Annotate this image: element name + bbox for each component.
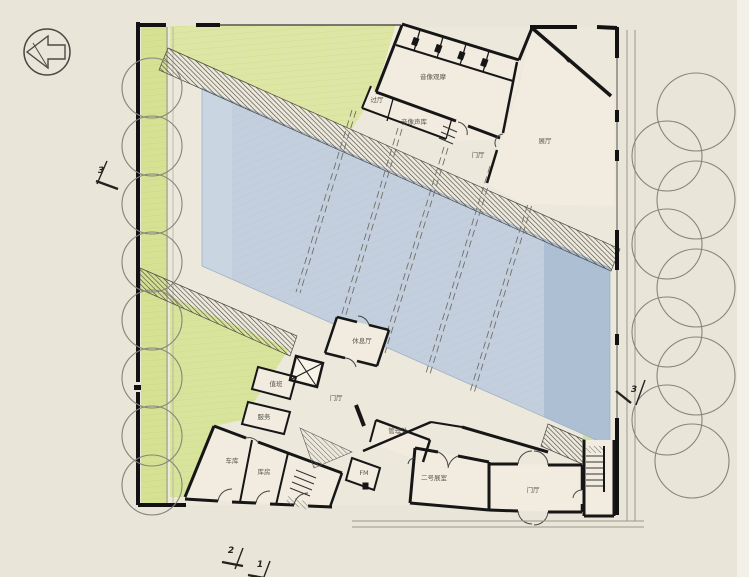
room-label-0: 音像观摩 bbox=[420, 74, 446, 81]
room-label-2: 音像声库 bbox=[401, 119, 427, 126]
room-label-13: 二号展室 bbox=[421, 475, 447, 482]
floor-plan-canvas bbox=[0, 0, 749, 577]
room-label-11: 库房 bbox=[258, 469, 271, 476]
room-label-7: 门厅 bbox=[330, 395, 343, 402]
room-label-5: 休息厅 bbox=[352, 338, 372, 345]
room-label-6: 值班 bbox=[270, 381, 283, 388]
room-label-9: 管理处 bbox=[388, 428, 408, 435]
room-label-12: FM bbox=[359, 470, 368, 477]
section-marker-2: 2 bbox=[228, 546, 234, 556]
paper-edge bbox=[737, 0, 749, 577]
section-marker-3-right: 3 bbox=[631, 385, 637, 395]
room-label-4: 展厅 bbox=[539, 138, 552, 145]
floor-plan-document: 音像观摩过厅音像声库门厅展厅休息厅值班门厅服务管理处车库库房FM二号展室门厅 3… bbox=[0, 0, 749, 577]
room-label-3: 门厅 bbox=[472, 152, 485, 159]
section-marker-1: 1 bbox=[257, 560, 263, 570]
room-label-14: 门厅 bbox=[527, 487, 540, 494]
room-label-8: 服务 bbox=[258, 414, 271, 421]
room-label-1: 过厅 bbox=[371, 97, 384, 104]
section-marker-3-left: 3 bbox=[98, 166, 104, 176]
room-label-10: 车库 bbox=[226, 458, 239, 465]
